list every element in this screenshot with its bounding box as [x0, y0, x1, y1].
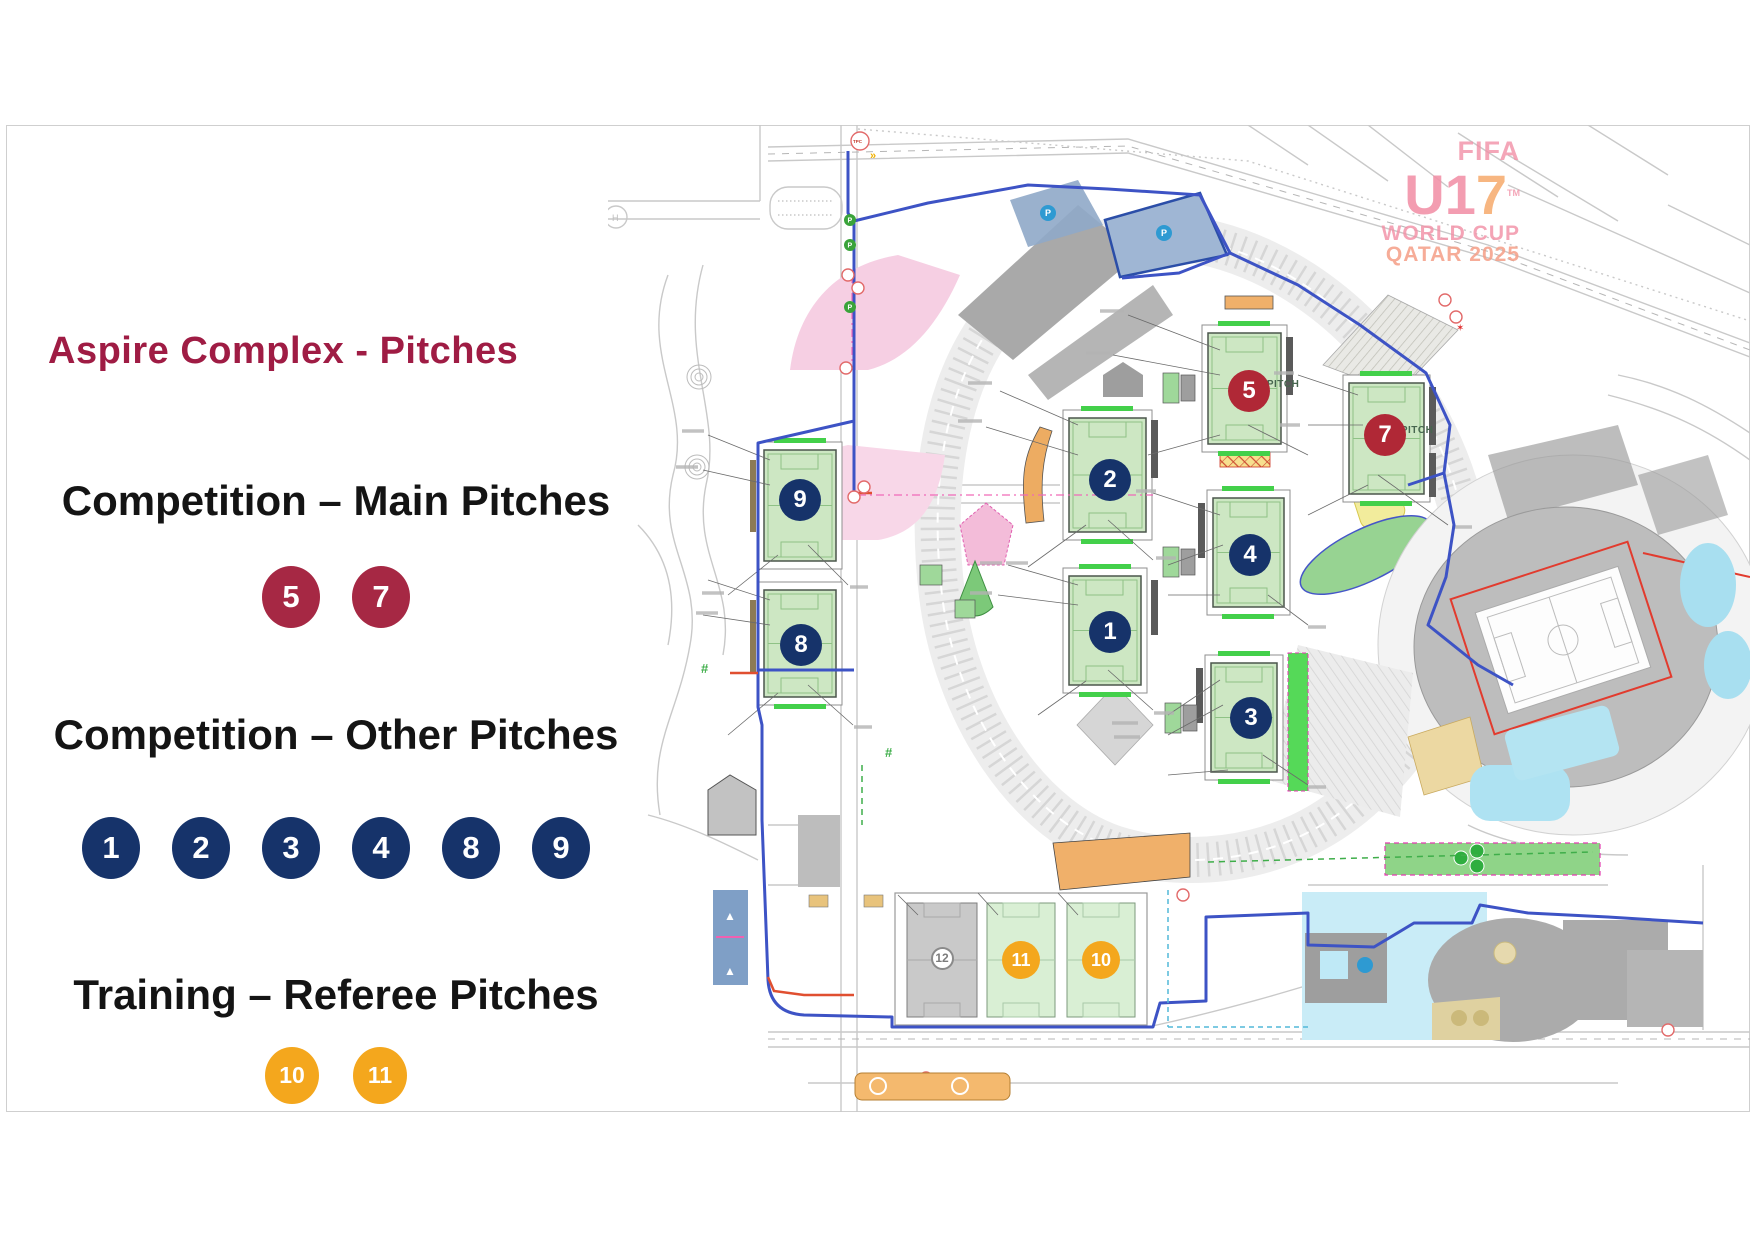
logo-fifa-text: FIFA	[1330, 138, 1520, 166]
logo-qatar-text: QATAR 2025	[1330, 244, 1520, 265]
map-pitch-badge-3: 3	[1230, 697, 1272, 739]
legend-badge-4: 4	[352, 817, 410, 879]
map-pitch-badge-1: 1	[1089, 611, 1131, 653]
legend-badge-5: 5	[262, 566, 320, 628]
legend-badges-other: 123489	[26, 817, 646, 879]
legend-badge-1: 1	[82, 817, 140, 879]
legend-panel: Aspire Complex - Pitches Competition – M…	[6, 125, 608, 1112]
fifa-u17-logo: FIFA U17TM WORLD CUP QATAR 2025	[1330, 138, 1520, 265]
map-pitch-badge-11: 11	[1002, 941, 1040, 979]
map-pitch-badge-7: 7	[1364, 414, 1406, 456]
legend-badge-10: 10	[265, 1047, 319, 1104]
map-pitch-badge-9: 9	[779, 479, 821, 521]
logo-worldcup-text: WORLD CUP	[1330, 223, 1520, 244]
legend-heading-training: Training – Referee Pitches	[26, 971, 646, 1019]
logo-u17-text: U17TM	[1330, 166, 1520, 223]
site-map: H ▲ ▲	[608, 125, 1750, 1112]
page-title: Aspire Complex - Pitches	[48, 330, 518, 373]
legend-badge-9: 9	[532, 817, 590, 879]
legend-badge-11: 11	[353, 1047, 407, 1104]
map-pitch-badge-4: 4	[1229, 534, 1271, 576]
map-badges-layer: 57241398111012	[608, 125, 1750, 1112]
legend-badge-2: 2	[172, 817, 230, 879]
map-pitch-badge-8: 8	[780, 624, 822, 666]
legend-badges-training: 1011	[26, 1047, 646, 1104]
legend-badge-7: 7	[352, 566, 410, 628]
map-pitch-badge-12: 12	[931, 947, 954, 970]
legend-badge-3: 3	[262, 817, 320, 879]
legend-badges-main: 57	[26, 566, 646, 628]
map-pitch-badge-10: 10	[1082, 941, 1120, 979]
legend-heading-other: Competition – Other Pitches	[26, 711, 646, 759]
legend-heading-main: Competition – Main Pitches	[26, 477, 646, 525]
map-pitch-badge-5: 5	[1228, 370, 1270, 412]
map-pitch-badge-2: 2	[1089, 459, 1131, 501]
legend-badge-8: 8	[442, 817, 500, 879]
